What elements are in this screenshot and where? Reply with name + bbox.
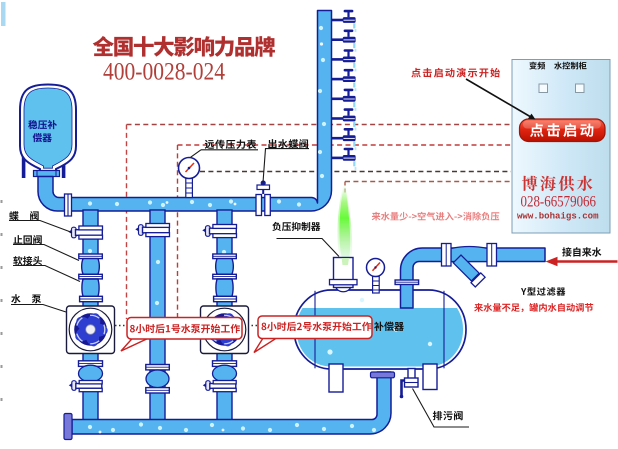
svg-text:028-66579066: 028-66579066 — [521, 194, 597, 211]
svg-text:www.bohaigs.com: www.bohaigs.com — [517, 210, 599, 221]
svg-text:400-0028-024: 400-0028-024 — [103, 58, 225, 85]
